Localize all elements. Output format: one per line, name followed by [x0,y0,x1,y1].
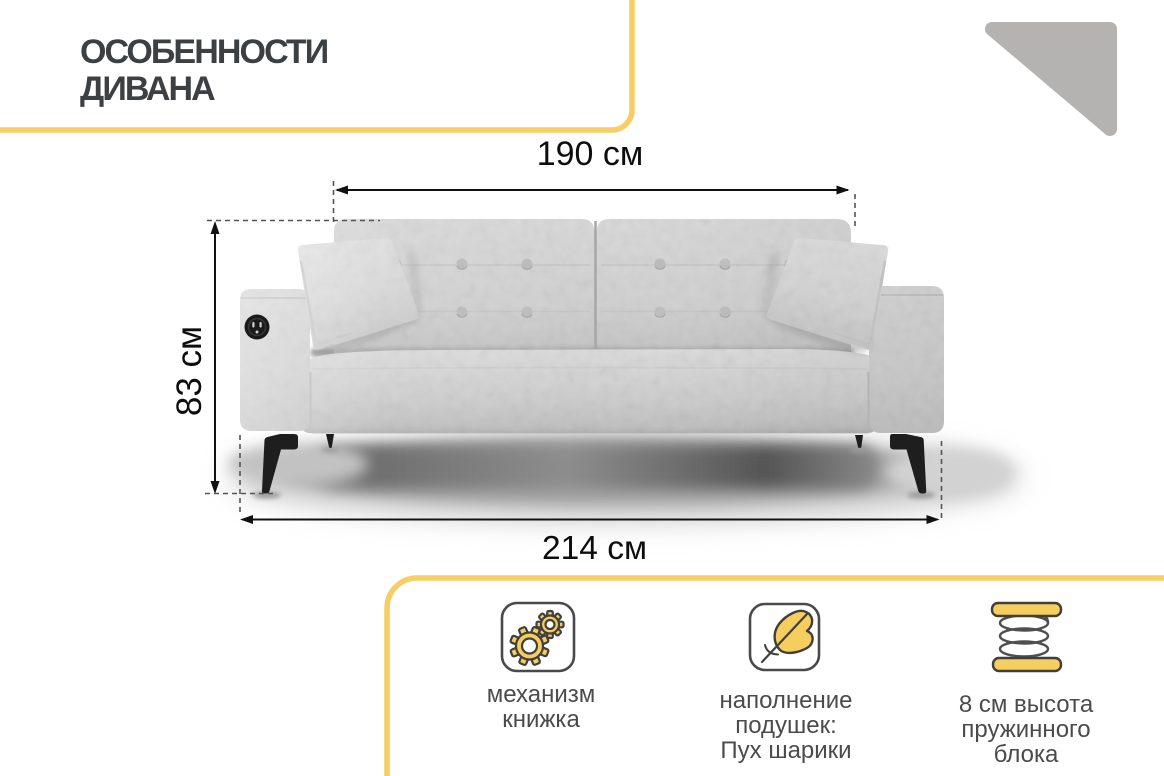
svg-text:8 см высота: 8 см высота [959,691,1094,718]
svg-text:214 см: 214 см [542,530,647,567]
svg-text:ДИВАНА: ДИВАНА [80,70,215,108]
svg-text:подушек:: подушек: [735,712,837,739]
svg-text:пружинного: пружинного [961,716,1090,743]
svg-text:блока: блока [994,741,1059,768]
svg-text:190 см: 190 см [537,135,644,173]
svg-text:83 см: 83 см [170,326,209,416]
svg-text:книжка: книжка [502,706,580,733]
svg-text:ОСОБЕННОСТИ: ОСОБЕННОСТИ [80,33,328,71]
svg-text:наполнение: наполнение [719,687,852,714]
svg-text:механизм: механизм [487,681,596,708]
svg-text:Пух шарики: Пух шарики [720,737,851,764]
